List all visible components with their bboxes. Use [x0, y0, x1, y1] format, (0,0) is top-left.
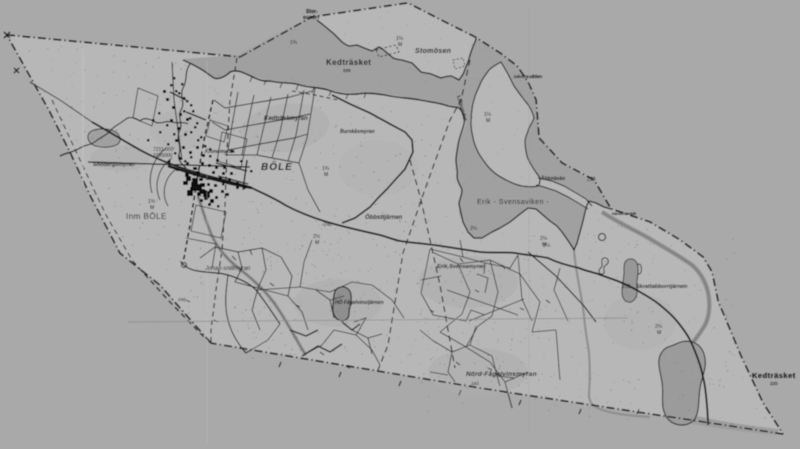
svg-text:M: M — [315, 240, 319, 246]
svg-text:Erik-Svensamyran: Erik-Svensamyran — [437, 264, 486, 270]
svg-text:Erik - Svensaviken -: Erik - Svensaviken - — [477, 199, 549, 206]
svg-text:Kedträsket: Kedträsket — [752, 371, 796, 380]
svg-text:Jakobsudden: Jakobsudden — [513, 74, 542, 79]
svg-text:Burskåsmyran: Burskåsmyran — [340, 128, 375, 135]
svg-text:220: 220 — [343, 68, 351, 73]
svg-text:Öbbsttjärnen: Öbbsttjärnen — [365, 214, 403, 221]
svg-text:M: M — [324, 172, 328, 178]
svg-text:1¾: 1¾ — [290, 40, 298, 46]
svg-text:Näraviksskft: Näraviksskft — [612, 211, 636, 216]
svg-text:BÖLE: BÖLE — [261, 160, 293, 173]
svg-text:Åbbnäsän: Åbbnäsän — [541, 175, 565, 182]
svg-text:Nörd-Fågelvinsmyran: Nörd-Fågelvinsmyran — [466, 370, 537, 378]
svg-text:M: M — [657, 330, 661, 336]
svg-text:2½: 2½ — [313, 233, 321, 240]
svg-text:-242: -242 — [322, 222, 332, 228]
svg-text:Johan-snillmyran: Johan-snillmyran — [204, 266, 251, 272]
svg-text:2¼: 2¼ — [470, 226, 478, 232]
svg-text:M: M — [486, 118, 490, 124]
svg-text:M: M — [150, 205, 154, 211]
svg-text:sundet: sundet — [303, 15, 320, 21]
svg-text:2¼: 2¼ — [543, 243, 551, 249]
svg-text:Snöbergsmyran: Snöbergsmyran — [93, 162, 136, 168]
svg-text:222: 222 — [622, 284, 631, 290]
svg-text:1695000: 1695000 — [153, 153, 173, 159]
svg-text:Kronomyran: Kronomyran — [205, 149, 235, 155]
svg-text:Kedträskmyran: Kedträskmyran — [264, 116, 308, 122]
svg-text:HÖ Fågelvinstjärnen: HÖ Fågelvinstjärnen — [335, 299, 384, 306]
svg-text:220: 220 — [770, 381, 778, 386]
svg-text:M: M — [398, 42, 402, 48]
svg-text:Kedträsket: Kedträsket — [326, 58, 371, 67]
svg-text:Inm BÖLE: Inm BÖLE — [126, 212, 167, 221]
svg-text:220: 220 — [587, 177, 596, 183]
svg-text:Skrattabborrtjärnen: Skrattabborrtjärnen — [636, 284, 688, 290]
svg-text:Stomösen: Stomösen — [415, 48, 451, 55]
